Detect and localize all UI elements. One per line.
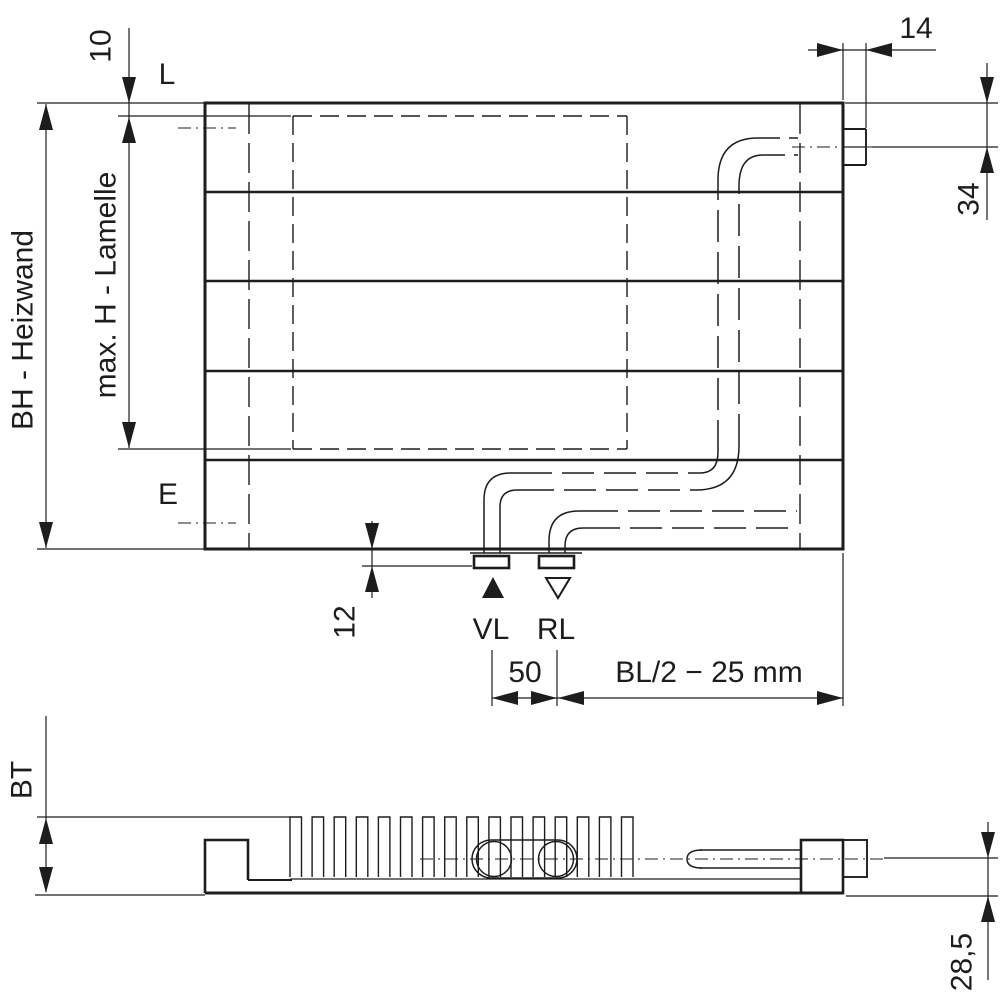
dimension-14	[808, 43, 936, 128]
lamelle-extent-rect	[293, 116, 627, 449]
front-view	[178, 103, 872, 598]
labels: 10 L BH - Heizwand max. H - Lamelle E 14…	[6, 12, 986, 991]
convector-fins	[290, 817, 633, 877]
bracket-label: L	[159, 58, 176, 91]
supply-pipe	[484, 138, 798, 553]
return-flow-arrow	[546, 578, 570, 598]
dim-12-label: 12	[329, 605, 362, 638]
vent-connection-tab	[792, 129, 872, 165]
return-pipe	[549, 511, 797, 553]
dim-14-label: 14	[899, 12, 932, 45]
dim-28-5-label: 28,5	[946, 933, 979, 991]
dim-bh-label: BH - Heizwand	[7, 230, 40, 430]
radiator-body-outline	[205, 103, 843, 549]
radiator-dimension-drawing: 10 L BH - Heizwand max. H - Lamelle E 14…	[0, 0, 1000, 1000]
dim-lamelle-label: max. H - Lamelle	[90, 172, 123, 399]
dim-10-label: 10	[85, 29, 118, 62]
connection-block	[801, 840, 843, 893]
dimension-12	[362, 521, 472, 598]
left-end-bracket	[205, 840, 248, 893]
fin-row-separators	[205, 192, 843, 460]
bottom-connection-stubs	[470, 553, 582, 598]
return-stub	[539, 556, 574, 568]
return-label: RL	[537, 613, 575, 646]
dimension-bt	[39, 716, 53, 893]
bracket-centerline-marks	[178, 128, 236, 523]
vent-label: E	[158, 478, 178, 511]
dim-34-label: 34	[953, 182, 986, 215]
dim-bt-label: BT	[6, 761, 39, 799]
dim-50-label: 50	[508, 656, 541, 689]
technical-drawing-page: 10 L BH - Heizwand max. H - Lamelle E 14…	[0, 0, 1000, 1000]
supply-flow-arrow	[482, 577, 504, 598]
dim-bl2-label: BL/2 − 25 mm	[615, 656, 803, 689]
bottom-view	[35, 817, 884, 895]
supply-label: VL	[473, 613, 510, 646]
supply-stub	[474, 556, 509, 568]
